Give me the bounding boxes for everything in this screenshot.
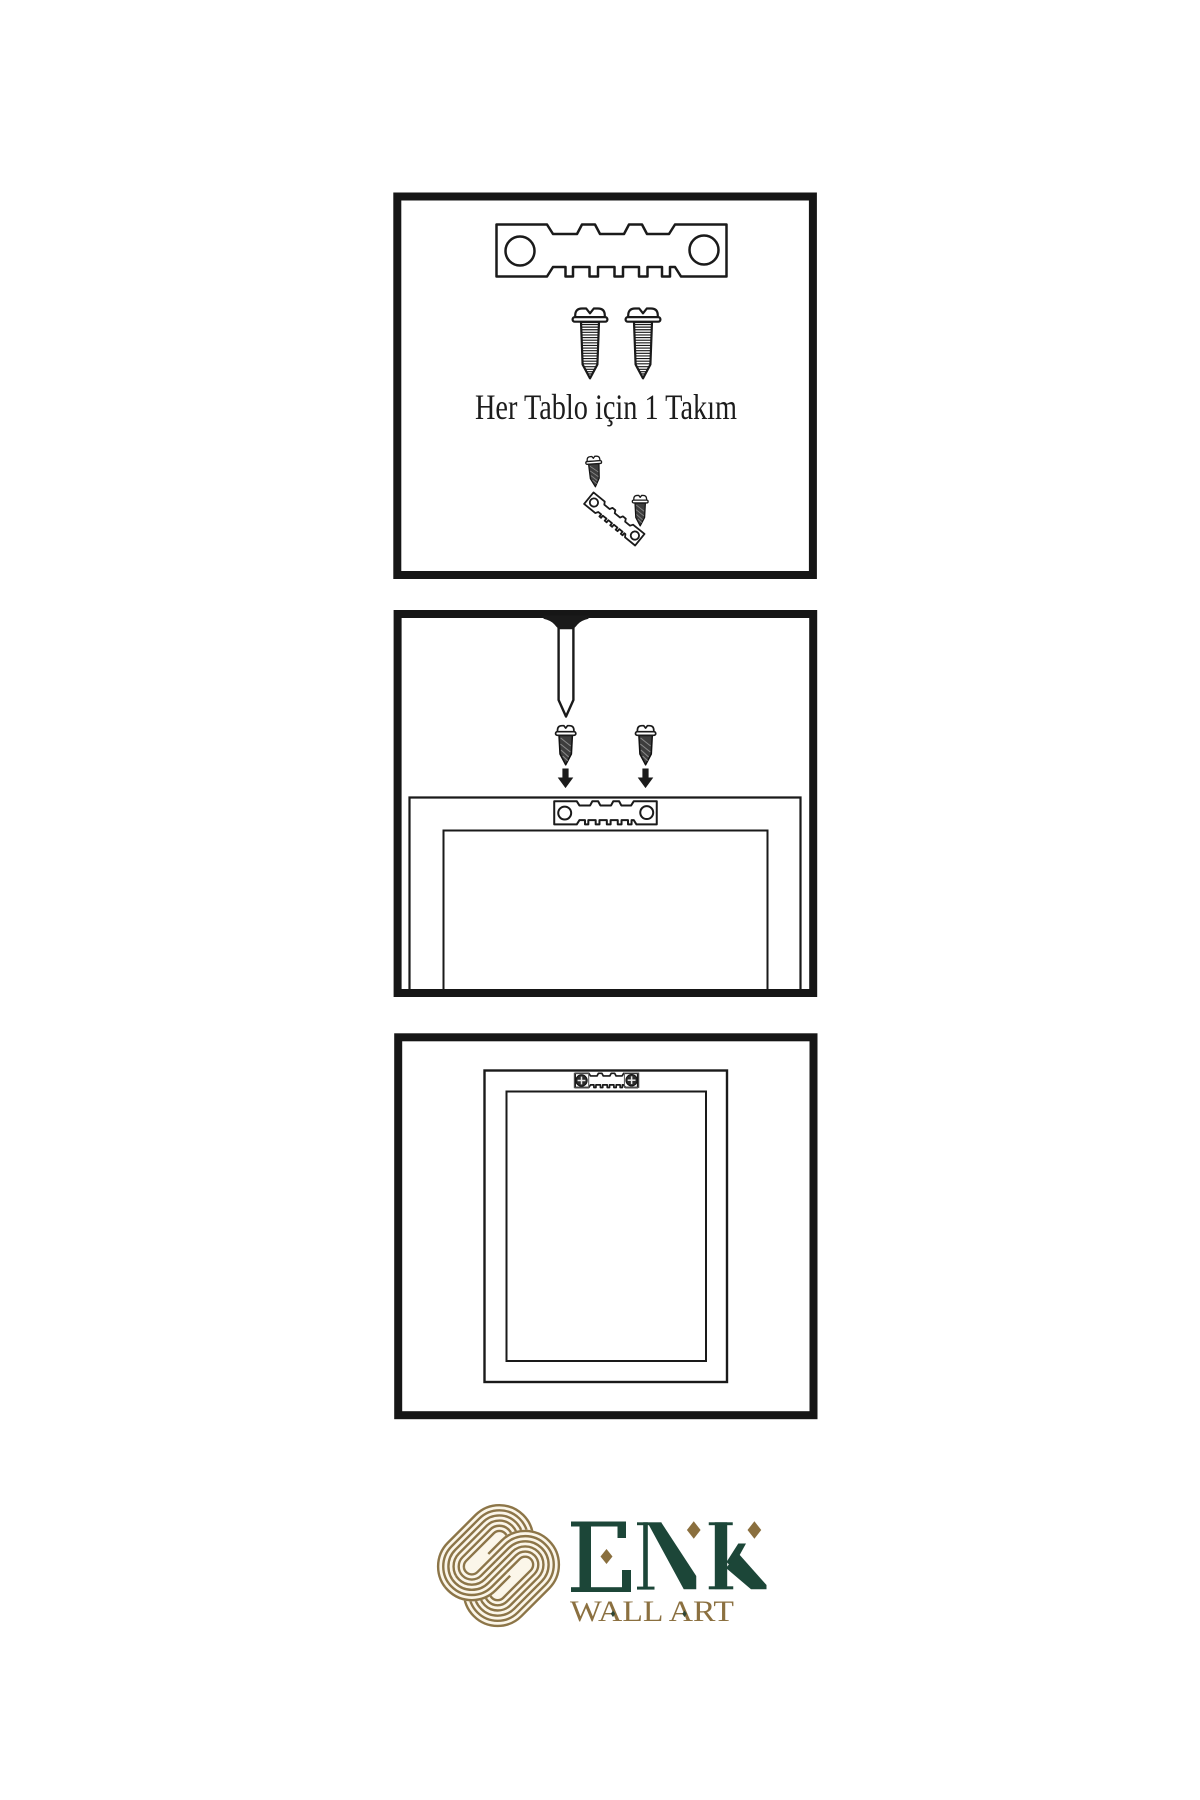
svg-text:Her Tablo için 1 Takım: Her Tablo için 1 Takım: [475, 387, 737, 427]
svg-text:WALL ART: WALL ART: [570, 1595, 734, 1628]
